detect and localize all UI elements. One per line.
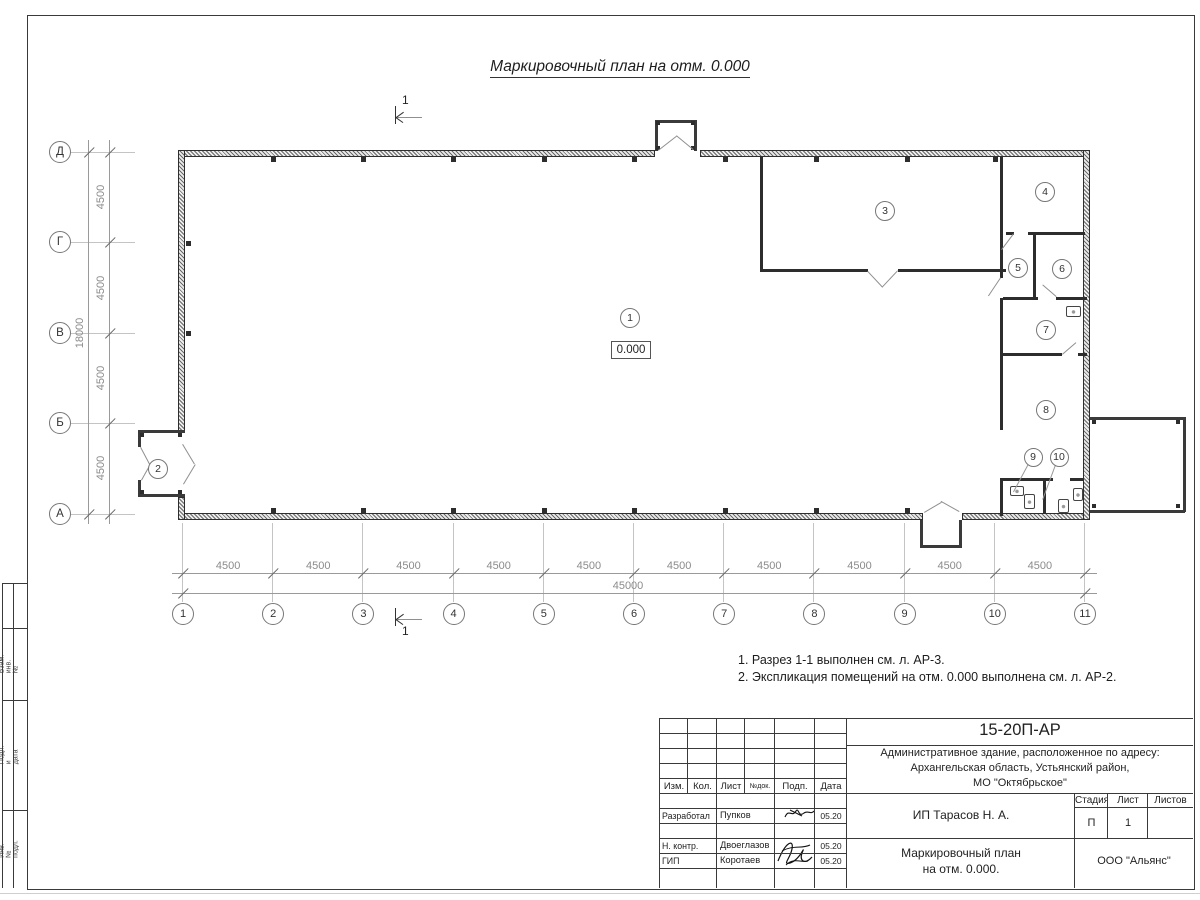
pilaster <box>632 157 637 162</box>
col-izm: Изм. <box>660 781 688 792</box>
row-axis-bubble: В <box>49 322 71 344</box>
section-mark-arrow <box>396 117 422 118</box>
column-grid-line <box>363 523 364 602</box>
sheets-label: Листов <box>1148 795 1193 806</box>
column-grid-line <box>1084 523 1085 602</box>
plumbing-fixture <box>1024 494 1035 509</box>
column-grid-line <box>272 523 273 602</box>
exterior-wall <box>178 150 185 433</box>
column-grid-line <box>904 523 905 602</box>
grid-line <box>3 628 27 629</box>
column-grid-line <box>814 523 815 602</box>
room-number-bubble: 10 <box>1050 448 1069 467</box>
dimension-line <box>172 593 1097 594</box>
role-date: 05.20 <box>815 841 847 851</box>
role-name: Пупков <box>720 810 774 820</box>
column-axis-bubble: 4 <box>443 603 465 625</box>
pilaster <box>723 508 728 513</box>
column-axis-bubble: 7 <box>713 603 735 625</box>
stage-label: Стадия <box>1075 795 1108 806</box>
role: ГИП <box>662 856 717 866</box>
pilaster <box>271 508 276 513</box>
door-leaf <box>183 464 196 485</box>
corner-post <box>691 121 695 125</box>
pilaster <box>814 157 819 162</box>
interior-wall <box>1056 297 1087 300</box>
grid-line <box>847 838 1193 839</box>
role-name: Коротаев <box>720 855 776 865</box>
pilaster <box>186 331 191 336</box>
corner-post <box>1092 420 1096 424</box>
drawing-title: на отм. 0.000. <box>847 862 1075 876</box>
room-number-bubble: 1 <box>620 308 640 328</box>
row-axis-bubble: А <box>49 503 71 525</box>
interior-wall <box>1000 298 1003 430</box>
row-grid-line <box>71 152 135 153</box>
corner-post <box>178 490 182 494</box>
column-axis-bubble: 8 <box>803 603 825 625</box>
dimension-label: 4500 <box>95 366 107 390</box>
thin-wall <box>1090 417 1185 420</box>
column-axis-bubble: 11 <box>1074 603 1096 625</box>
thin-wall <box>920 545 962 548</box>
door-leaf <box>882 270 898 287</box>
grid-line <box>744 718 745 793</box>
room-number-bubble: 7 <box>1036 320 1056 340</box>
pilaster <box>271 157 276 162</box>
grid-line <box>847 745 1193 746</box>
grid-line <box>660 778 847 779</box>
grid-line <box>660 763 847 764</box>
room-number-bubble: 9 <box>1024 448 1043 467</box>
dimension-label-total: 45000 <box>613 580 644 592</box>
dimension-label: 4500 <box>216 560 240 572</box>
row-grid-line <box>71 242 135 243</box>
exterior-wall <box>700 150 1090 157</box>
column-grid-line <box>543 523 544 602</box>
row-axis-bubble: Д <box>49 141 71 163</box>
role: Разработал <box>662 811 717 821</box>
thin-wall <box>959 520 962 548</box>
room-number-bubble: 2 <box>148 459 168 479</box>
interior-wall <box>1028 232 1085 235</box>
grid-line <box>660 793 1193 794</box>
column-axis-bubble: 6 <box>623 603 645 625</box>
role-name: Двоеглазов <box>720 840 776 850</box>
pilaster <box>905 157 910 162</box>
dimension-label: 4500 <box>95 275 107 299</box>
grid-line <box>1075 807 1193 808</box>
interior-wall <box>898 269 1006 272</box>
col-list: Лист <box>717 781 745 792</box>
dimension-line <box>88 140 89 524</box>
thin-wall <box>1183 417 1186 512</box>
grid-line <box>660 823 847 824</box>
door-leaf <box>1001 233 1014 250</box>
pilaster <box>451 508 456 513</box>
plumbing-fixture <box>1010 486 1024 496</box>
interior-wall <box>1000 157 1003 278</box>
section-mark-line <box>395 608 396 626</box>
row-grid-line <box>71 514 135 515</box>
thin-wall <box>138 494 185 497</box>
room-number-bubble: 8 <box>1036 400 1056 420</box>
door-leaf <box>182 444 195 465</box>
dimension-label: 4500 <box>1028 560 1052 572</box>
thin-wall <box>1090 510 1185 513</box>
dimension-label: 4500 <box>396 560 420 572</box>
pilaster <box>186 241 191 246</box>
room-number-bubble: 5 <box>1008 258 1028 278</box>
pilaster <box>632 508 637 513</box>
column-grid-line <box>453 523 454 602</box>
grid-line <box>774 718 775 888</box>
pilaster <box>723 157 728 162</box>
corner-post <box>140 490 144 494</box>
column-axis-bubble: 5 <box>533 603 555 625</box>
room-number-bubble: 6 <box>1052 259 1072 279</box>
grid-line <box>3 810 27 811</box>
role-date: 05.20 <box>815 856 847 866</box>
interior-wall <box>1070 478 1083 481</box>
dimension-label-total: 18000 <box>74 318 86 349</box>
plumbing-fixture <box>1073 488 1083 501</box>
grid-line <box>660 853 847 854</box>
interior-wall <box>1033 235 1036 298</box>
row-grid-line <box>71 423 135 424</box>
grid-line <box>1107 793 1108 838</box>
grid-line <box>660 868 847 869</box>
corner-post <box>140 433 144 437</box>
door-leaf <box>676 135 694 150</box>
drawing-title: Маркировочный план <box>847 846 1075 860</box>
door-leaf <box>658 136 677 151</box>
dimension-label: 4500 <box>937 560 961 572</box>
door-leaf <box>988 277 1001 296</box>
grid-line <box>1147 793 1148 838</box>
sheet-value: 1 <box>1108 817 1148 829</box>
dimension-label: 4500 <box>577 560 601 572</box>
grid-line <box>660 733 847 734</box>
dimension-label: 4500 <box>95 456 107 480</box>
interior-wall <box>760 269 868 272</box>
column-grid-line <box>994 523 995 602</box>
pilaster <box>361 157 366 162</box>
column-axis-bubble: 3 <box>352 603 374 625</box>
pilaster <box>542 508 547 513</box>
door-leaf <box>1042 284 1057 297</box>
door-leaf <box>867 271 883 288</box>
grid-line <box>660 838 847 839</box>
pilaster <box>993 157 998 162</box>
grid-line <box>660 808 847 809</box>
col-podp: Подп. <box>775 781 815 792</box>
row-axis-bubble: Б <box>49 412 71 434</box>
corner-post <box>1092 504 1096 508</box>
grid-line <box>846 718 847 888</box>
client: ИП Тарасов Н. А. <box>847 808 1075 822</box>
column-axis-bubble: 10 <box>984 603 1006 625</box>
column-axis-bubble: 9 <box>894 603 916 625</box>
section-mark-arrow <box>396 619 422 620</box>
grid-line <box>660 718 1193 719</box>
grid-line <box>687 718 688 793</box>
plumbing-fixture <box>1058 499 1069 513</box>
corner-post <box>178 433 182 437</box>
project-name: МО "Октябрьское" <box>850 777 1190 789</box>
door-leaf <box>924 502 942 513</box>
role: Н. контр. <box>662 841 717 851</box>
dimension-label: 4500 <box>306 560 330 572</box>
col-ndok: №док. <box>745 783 775 790</box>
company: ООО "Альянс" <box>1075 855 1193 867</box>
dimension-label: 4500 <box>667 560 691 572</box>
section-mark-line <box>395 106 396 124</box>
column-axis-bubble: 2 <box>262 603 284 625</box>
pilaster <box>542 157 547 162</box>
corner-post <box>656 121 660 125</box>
dimension-label: 4500 <box>757 560 781 572</box>
project-name: Административное здание, расположенное п… <box>850 747 1190 759</box>
grid-line <box>660 748 847 749</box>
grid-line <box>814 718 815 888</box>
door-leaf <box>140 447 150 464</box>
col-data: Дата <box>815 781 847 792</box>
door-leaf <box>941 501 959 512</box>
signature <box>772 835 818 869</box>
interior-wall <box>1078 353 1087 356</box>
column-grid-line <box>182 523 183 602</box>
exterior-wall <box>178 150 655 157</box>
pilaster <box>451 157 456 162</box>
grid-line <box>659 718 660 888</box>
interior-wall <box>1003 353 1062 356</box>
pilaster <box>905 508 910 513</box>
corner-post <box>1176 420 1180 424</box>
doc-number: 15-20П-АР <box>847 721 1193 740</box>
sheet-label: Лист <box>1108 795 1148 806</box>
grid-line <box>3 700 27 701</box>
thin-wall <box>920 520 923 548</box>
column-axis-bubble: 1 <box>172 603 194 625</box>
stage-value: П <box>1075 817 1108 829</box>
row-axis-bubble: Г <box>49 231 71 253</box>
exterior-wall <box>1083 150 1090 520</box>
plumbing-fixture <box>1066 306 1081 317</box>
column-grid-line <box>723 523 724 602</box>
corner-post <box>1176 504 1180 508</box>
room-number-bubble: 4 <box>1035 182 1055 202</box>
dimension-label: 4500 <box>486 560 510 572</box>
exterior-wall <box>178 513 923 520</box>
exterior-wall <box>178 497 185 520</box>
project-name: Архангельская область, Устьянский район, <box>850 762 1190 774</box>
pilaster <box>814 508 819 513</box>
grid-line <box>3 583 27 584</box>
interior-wall <box>1000 478 1003 516</box>
room-number-bubble: 3 <box>875 201 895 221</box>
interior-wall <box>760 157 763 272</box>
grid-line <box>716 718 717 888</box>
interior-wall <box>1003 297 1038 300</box>
pilaster <box>361 508 366 513</box>
role-date: 05.20 <box>815 811 847 821</box>
drawing-sheet: Маркировочный план на отм. 0.000 1. Разр… <box>0 0 1200 900</box>
dimension-label: 4500 <box>95 185 107 209</box>
dimension-label: 4500 <box>847 560 871 572</box>
col-kol: Кол. <box>688 781 717 792</box>
exterior-wall <box>962 513 1090 520</box>
door-leaf <box>1062 342 1077 355</box>
